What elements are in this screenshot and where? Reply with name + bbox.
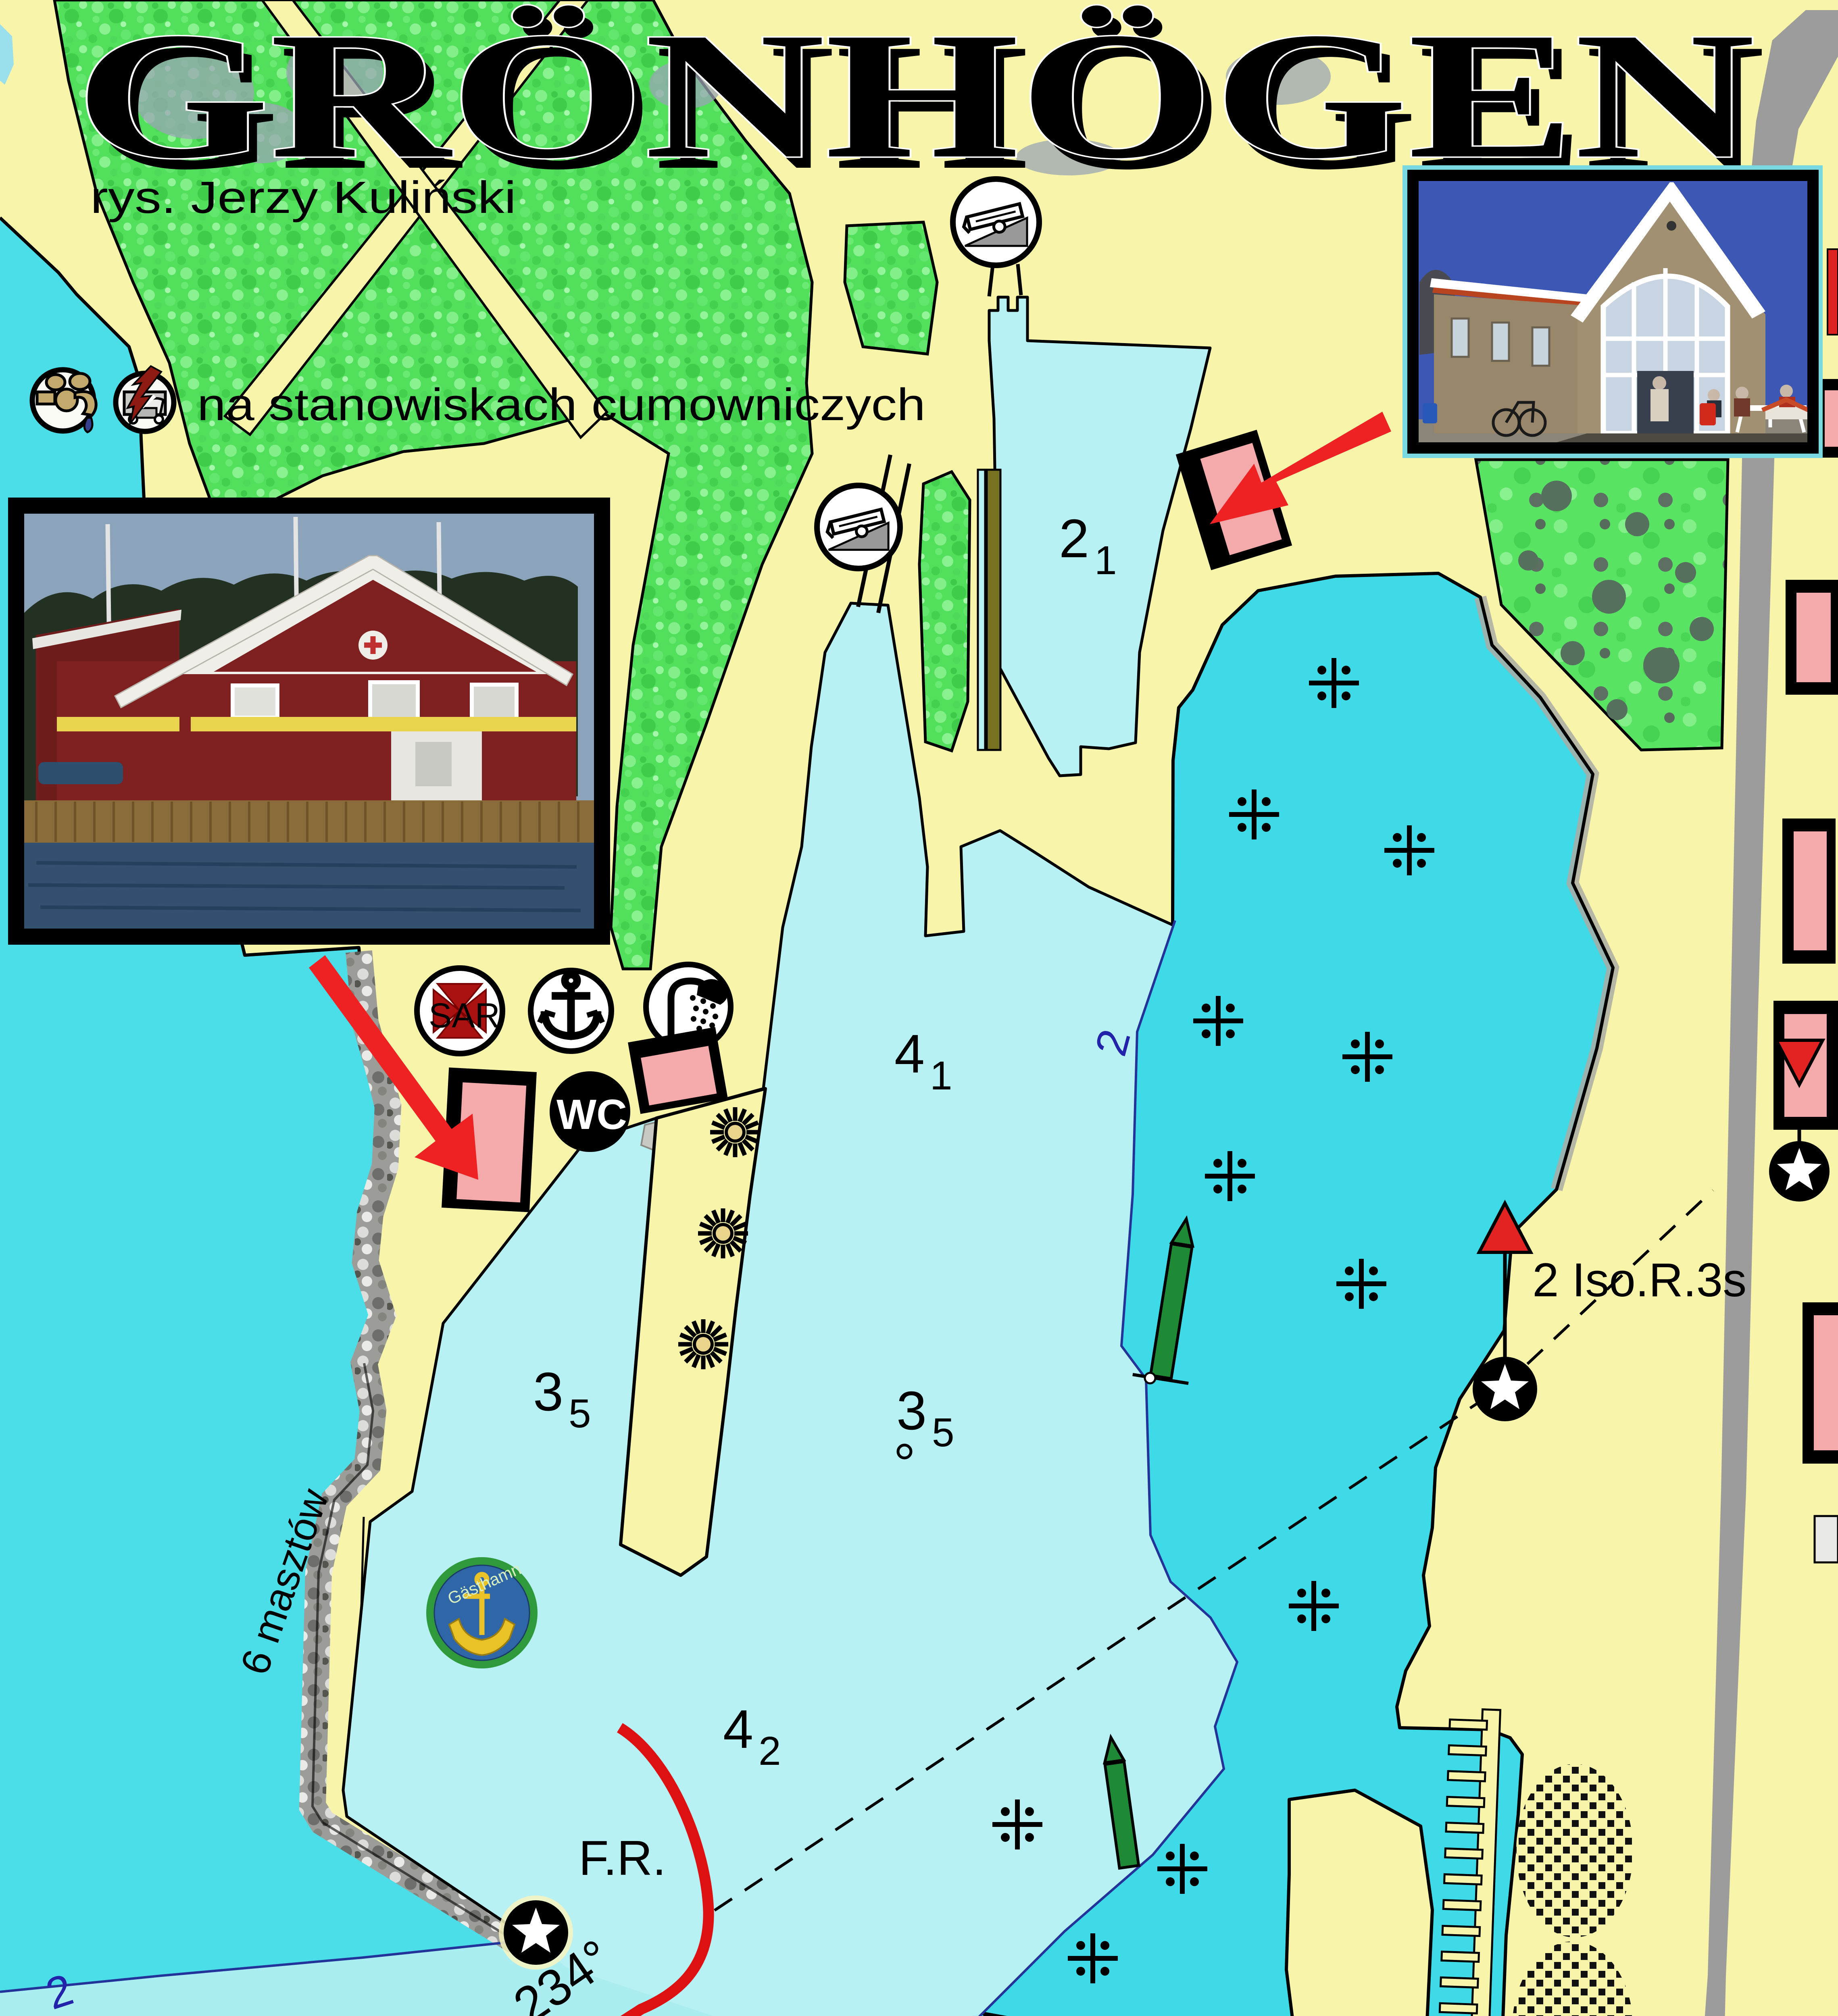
svg-text:4: 4 xyxy=(723,1699,753,1760)
svg-text:rys. Jerzy Kuliński: rys. Jerzy Kuliński xyxy=(90,172,516,223)
svg-text:5: 5 xyxy=(569,1391,591,1436)
svg-text:5: 5 xyxy=(932,1410,954,1455)
svg-text:WC: WC xyxy=(556,1091,627,1138)
svg-text:na stanowiskach cumowniczych: na stanowiskach cumowniczych xyxy=(197,379,925,430)
svg-text:1: 1 xyxy=(1094,538,1117,583)
svg-text:1: 1 xyxy=(930,1053,952,1098)
svg-text:3: 3 xyxy=(896,1380,927,1441)
svg-text:F.R.: F.R. xyxy=(579,1831,666,1885)
svg-text:3: 3 xyxy=(533,1361,563,1422)
svg-text:4: 4 xyxy=(894,1023,925,1084)
svg-text:2 Iso.R.3s: 2 Iso.R.3s xyxy=(1532,1254,1746,1307)
svg-text:2: 2 xyxy=(1059,508,1089,569)
svg-text:2: 2 xyxy=(759,1729,781,1774)
svg-text:SAR: SAR xyxy=(429,996,500,1035)
